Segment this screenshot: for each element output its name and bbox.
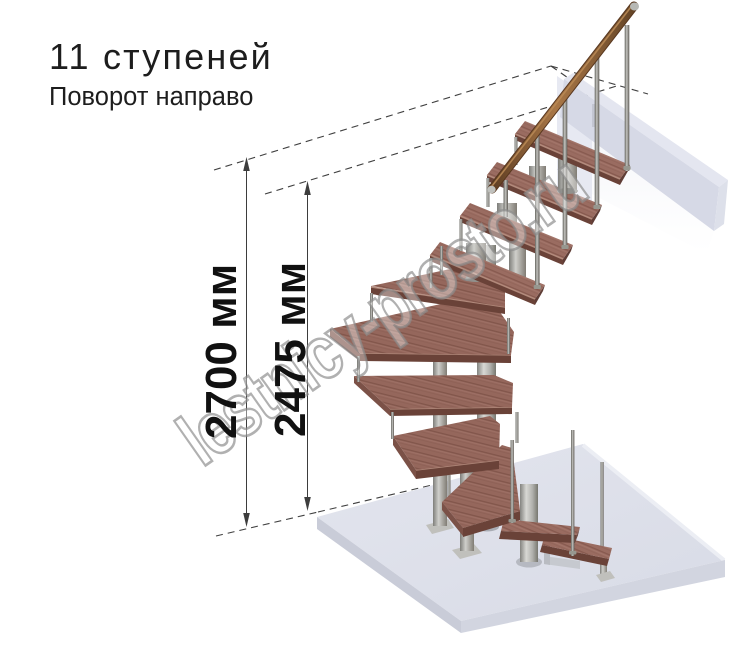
svg-text:2475 мм: 2475 мм: [266, 262, 315, 437]
svg-text:Поворот направо: Поворот направо: [49, 83, 253, 111]
svg-text:2700 мм: 2700 мм: [197, 264, 246, 439]
svg-text:11 ступеней: 11 ступеней: [49, 36, 273, 77]
